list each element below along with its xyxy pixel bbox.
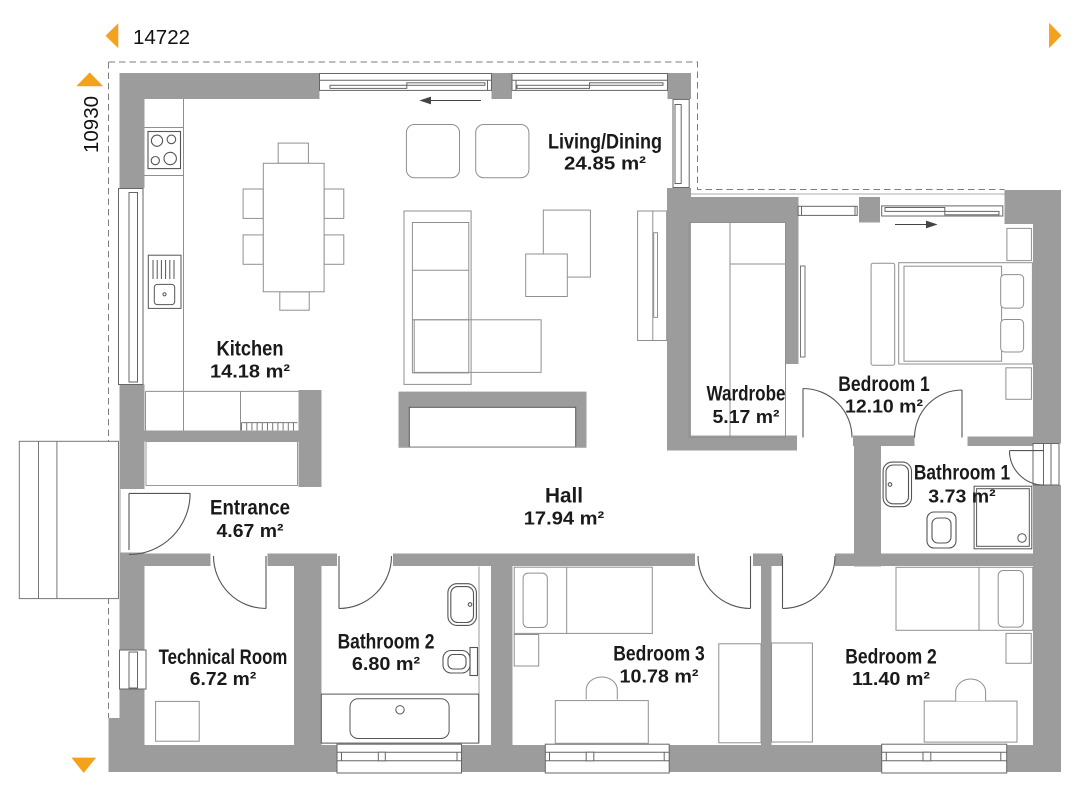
svg-text:10.78 m²: 10.78 m²	[620, 666, 699, 687]
svg-text:3.73 m²: 3.73 m²	[928, 486, 995, 507]
svg-text:Hall: Hall	[545, 485, 583, 508]
svg-text:Wardrobe: Wardrobe	[707, 383, 786, 406]
svg-text:14722: 14722	[133, 26, 190, 49]
svg-text:Bedroom 2: Bedroom 2	[845, 646, 937, 669]
svg-text:6.72 m²: 6.72 m²	[190, 668, 257, 689]
svg-text:Living/Dining: Living/Dining	[548, 131, 662, 154]
svg-text:4.67 m²: 4.67 m²	[217, 520, 284, 541]
svg-text:24.85 m²: 24.85 m²	[564, 153, 646, 174]
svg-text:Technical Room: Technical Room	[159, 646, 288, 669]
svg-text:6.80 m²: 6.80 m²	[352, 653, 420, 674]
svg-text:Bedroom 3: Bedroom 3	[613, 643, 705, 666]
svg-text:12.10 m²: 12.10 m²	[845, 396, 923, 417]
svg-text:Bedroom 1: Bedroom 1	[838, 373, 930, 396]
svg-text:Entrance: Entrance	[210, 497, 290, 520]
svg-text:14.18 m²: 14.18 m²	[210, 361, 290, 382]
svg-text:Bathroom 2: Bathroom 2	[338, 631, 435, 654]
svg-text:11.40 m²: 11.40 m²	[852, 668, 930, 689]
svg-text:Bathroom 1: Bathroom 1	[914, 462, 1011, 485]
svg-text:5.17 m²: 5.17 m²	[713, 406, 780, 427]
svg-text:10930: 10930	[80, 96, 103, 153]
svg-text:Kitchen: Kitchen	[217, 338, 284, 361]
svg-text:17.94 m²: 17.94 m²	[524, 508, 605, 529]
